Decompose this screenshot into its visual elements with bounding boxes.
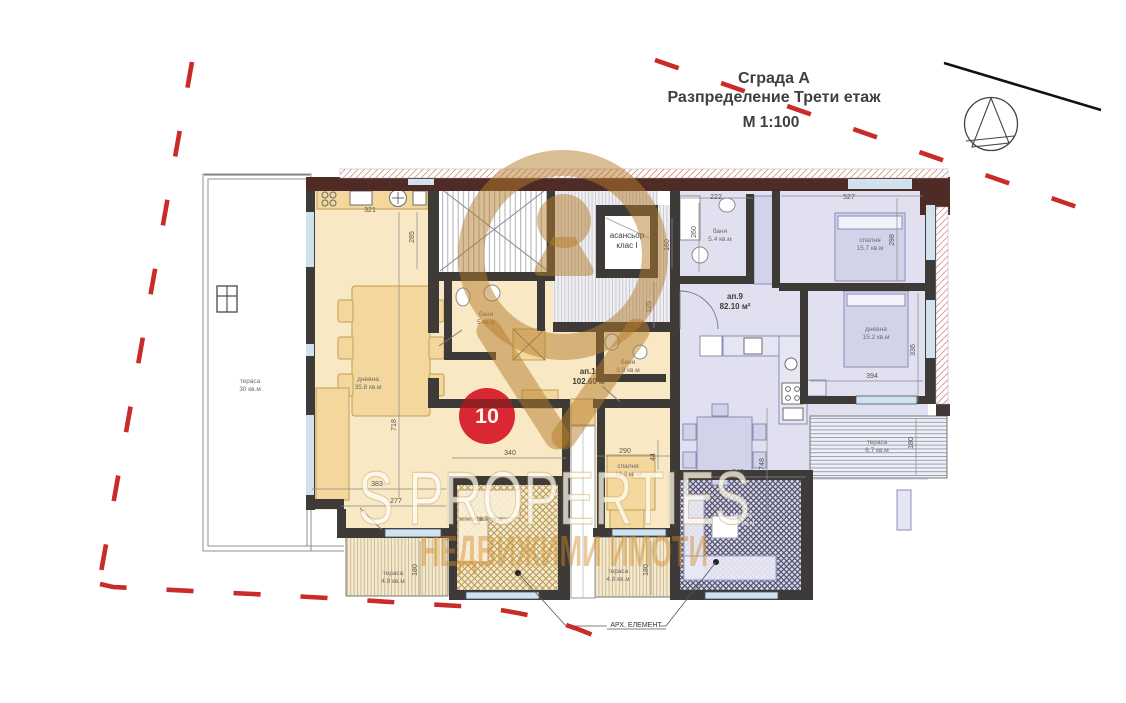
svg-text:спалня: спалня <box>859 237 881 244</box>
svg-text:клас I: клас I <box>616 241 637 250</box>
svg-text:748: 748 <box>759 458 766 470</box>
svg-text:180: 180 <box>908 437 915 449</box>
svg-text:4.8 кв.м: 4.8 кв.м <box>381 578 405 585</box>
svg-text:718: 718 <box>391 419 398 431</box>
svg-text:баня: баня <box>713 227 728 235</box>
svg-text:35.8 кв.м: 35.8 кв.м <box>354 384 382 391</box>
svg-text:дневна: дневна <box>357 376 379 383</box>
svg-text:НЕДВИЖИМИ ИМОТИ: НЕДВИЖИМИ ИМОТИ <box>420 527 708 576</box>
svg-text:тераса: тераса <box>240 378 261 385</box>
svg-text:4.8 кв.м: 4.8 кв.м <box>606 576 630 583</box>
svg-text:527: 527 <box>843 194 855 201</box>
svg-text:тераса: тераса <box>383 570 404 577</box>
svg-text:222: 222 <box>710 194 722 201</box>
svg-text:82.10 м²: 82.10 м² <box>720 302 751 311</box>
svg-text:дневна: дневна <box>865 326 887 333</box>
svg-text:298: 298 <box>889 234 896 246</box>
svg-text:285: 285 <box>409 231 416 243</box>
svg-text:321: 321 <box>364 207 376 214</box>
svg-text:180: 180 <box>412 564 419 576</box>
svg-text:290: 290 <box>619 448 631 455</box>
svg-text:394: 394 <box>866 373 878 380</box>
svg-text:336: 336 <box>910 344 917 356</box>
svg-text:Разпределение Трети етаж: Разпределение Трети етаж <box>667 89 881 106</box>
svg-text:10: 10 <box>475 404 499 428</box>
svg-text:АРХ. ЕЛЕМЕНТ: АРХ. ЕЛЕМЕНТ <box>610 622 662 629</box>
svg-text:260: 260 <box>691 226 698 238</box>
svg-text:М 1:100: М 1:100 <box>743 114 800 131</box>
svg-text:тераса: тераса <box>867 439 888 446</box>
svg-text:Сграда А: Сграда А <box>738 70 810 87</box>
svg-text:5.4 кв.м: 5.4 кв.м <box>708 236 732 243</box>
svg-text:15.2 кв.м: 15.2 кв.м <box>862 334 890 341</box>
svg-text:ап.9: ап.9 <box>727 292 744 301</box>
svg-text:6.7 кв.м: 6.7 кв.м <box>865 447 889 454</box>
svg-text:15.7 кв.м: 15.7 кв.м <box>856 245 884 252</box>
svg-text:30 кв.м: 30 кв.м <box>239 386 261 393</box>
